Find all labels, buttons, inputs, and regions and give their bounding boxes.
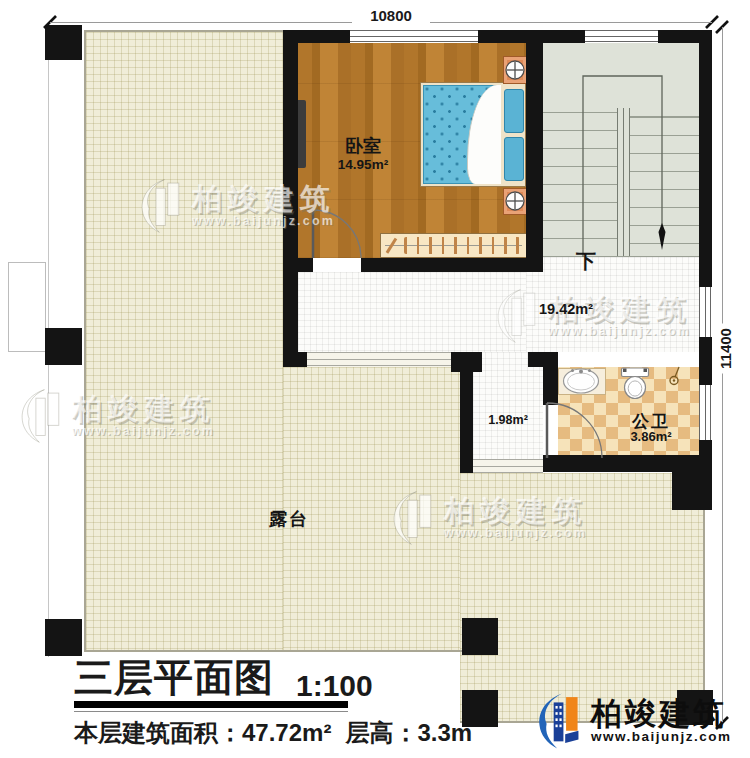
site-logo: 柏竣建筑 www.baijunjz.com bbox=[536, 690, 732, 752]
floor-area-value: 47.72m² bbox=[242, 719, 331, 746]
stairs-down-label: 下 bbox=[572, 250, 600, 273]
bedroom-window bbox=[350, 30, 478, 43]
hallway-area-label: 19.42m² bbox=[528, 301, 604, 318]
dimension-right-label: 11400 bbox=[717, 324, 734, 374]
column-west-mid bbox=[45, 328, 82, 365]
hallway-floor bbox=[298, 272, 526, 352]
wall-bathroom-bottom bbox=[543, 455, 699, 472]
plan-title: 三层平面图 bbox=[74, 651, 274, 705]
wall-bath-top-left bbox=[528, 352, 558, 367]
floor-area-label: 本层建筑面积： bbox=[74, 719, 242, 746]
site-logo-icon bbox=[536, 690, 582, 752]
bedroom-label: 卧室 bbox=[328, 136, 398, 157]
nightstand-bottom bbox=[503, 188, 527, 215]
wall-right-stub bbox=[672, 472, 712, 510]
floor-height-label: 层高： bbox=[345, 719, 417, 746]
hallway-window bbox=[699, 287, 712, 337]
watermark-logo-icon bbox=[18, 388, 64, 444]
floor-plan: 柏竣建筑 www.baijunjz.com 柏竣建筑 www.baijunjz.… bbox=[0, 0, 750, 758]
wall-right-mid bbox=[699, 337, 712, 385]
wall-bedroom-bottom-right bbox=[361, 258, 543, 272]
stairs-window bbox=[585, 30, 658, 43]
wall-bedroom-left bbox=[283, 30, 298, 367]
terrace-area-left bbox=[84, 30, 283, 652]
stair-railing bbox=[617, 108, 630, 257]
wall-bathroom-left bbox=[543, 367, 558, 405]
corridor-door-sill bbox=[473, 459, 543, 473]
terrace-label: 露台 bbox=[259, 509, 319, 530]
column-northwest bbox=[45, 25, 82, 60]
bathroom-counter bbox=[558, 368, 606, 395]
wall-top-3 bbox=[658, 30, 712, 43]
corridor-area-label: 1.98m² bbox=[470, 413, 546, 427]
dimension-top-label: 10800 bbox=[352, 7, 430, 24]
nightstand-top bbox=[503, 56, 527, 84]
bathroom-window bbox=[699, 385, 712, 440]
wall-hall-bottom-left bbox=[283, 352, 307, 367]
wall-bedroom-bottom-left bbox=[283, 258, 313, 272]
dimension-line-right bbox=[722, 27, 723, 723]
title-block: 三层平面图 1:100 bbox=[74, 651, 373, 705]
terrace-door-sill bbox=[307, 352, 451, 367]
site-logo-brand: 柏竣建筑 bbox=[591, 698, 732, 731]
exterior-ledge bbox=[8, 262, 46, 352]
wardrobe-hangers bbox=[404, 237, 520, 254]
title-underline bbox=[74, 701, 348, 708]
wall-right-lower bbox=[699, 440, 712, 472]
column-south-mid-upper bbox=[462, 618, 498, 655]
site-logo-url: www.baijunjz.com bbox=[591, 730, 732, 744]
wall-right-upper bbox=[699, 43, 712, 287]
bed-pillow-top bbox=[504, 89, 524, 133]
stair-treads-right bbox=[630, 112, 699, 257]
stair-hall-boundary bbox=[543, 256, 699, 258]
bathroom-area-label: 3.86m² bbox=[618, 430, 684, 445]
bedroom-area-label: 14.95m² bbox=[328, 157, 398, 173]
title-underline-thin bbox=[74, 711, 348, 713]
wall-bedroom-stairs bbox=[526, 30, 543, 258]
wall-hall-bottom-mid bbox=[451, 352, 482, 372]
plan-subtitle: 本层建筑面积：47.72m²层高：3.3m bbox=[74, 717, 472, 749]
corridor-floor bbox=[473, 352, 543, 459]
plan-scale: 1:100 bbox=[296, 669, 373, 705]
floor-height-value: 3.3m bbox=[417, 719, 472, 746]
stair-treads-left bbox=[543, 112, 617, 257]
bed-pillow-bottom bbox=[504, 137, 524, 181]
terrace-area-southeast bbox=[460, 473, 705, 723]
